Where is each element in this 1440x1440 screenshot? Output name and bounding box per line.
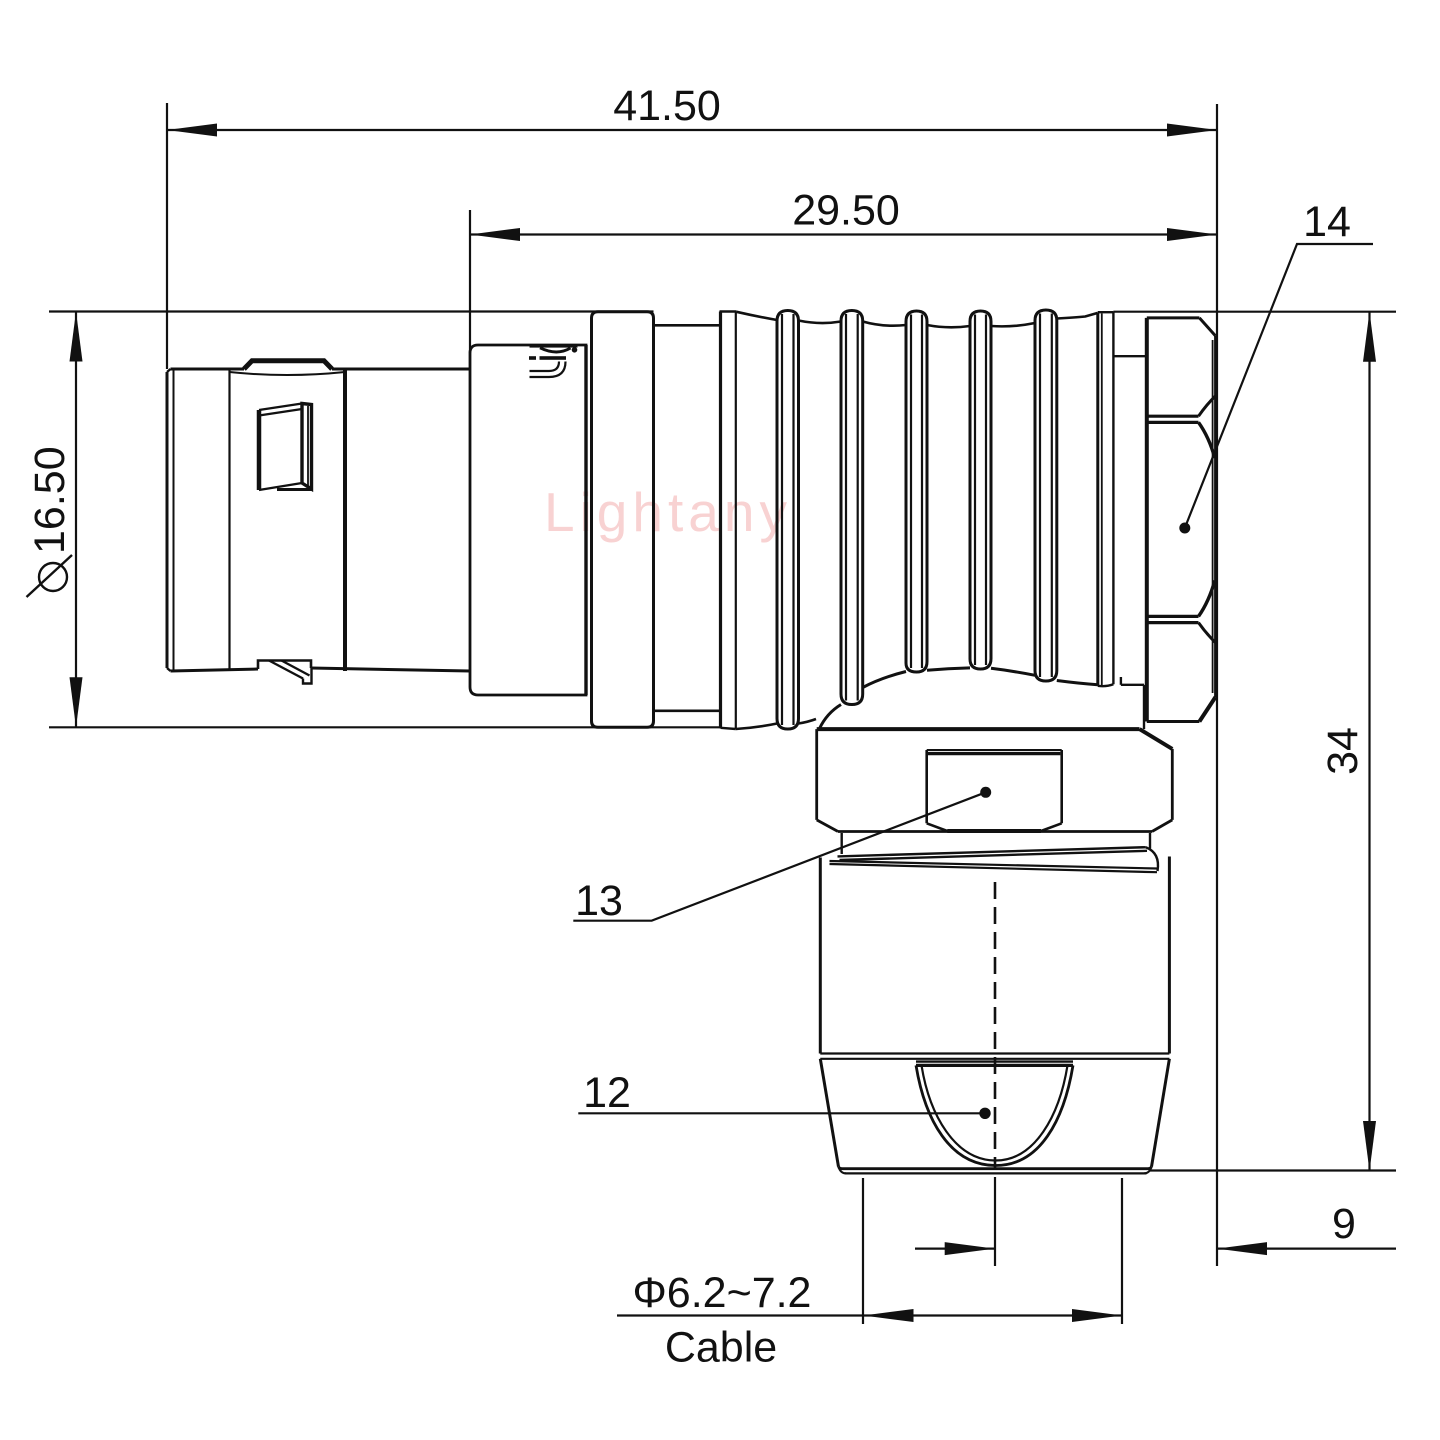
svg-text:Lightany: Lightany [544,481,792,543]
svg-text:13: 13 [575,877,623,925]
svg-text:41.50: 41.50 [613,82,721,130]
svg-text:14: 14 [1303,198,1351,246]
svg-text:Cable: Cable [665,1324,777,1372]
svg-text:16.50: 16.50 [26,446,74,554]
svg-text:12: 12 [583,1069,631,1117]
svg-text:9: 9 [1332,1200,1356,1248]
svg-text:Φ6.2~7.2: Φ6.2~7.2 [633,1269,812,1317]
svg-text:29.50: 29.50 [792,187,900,235]
svg-text:34: 34 [1319,727,1367,775]
